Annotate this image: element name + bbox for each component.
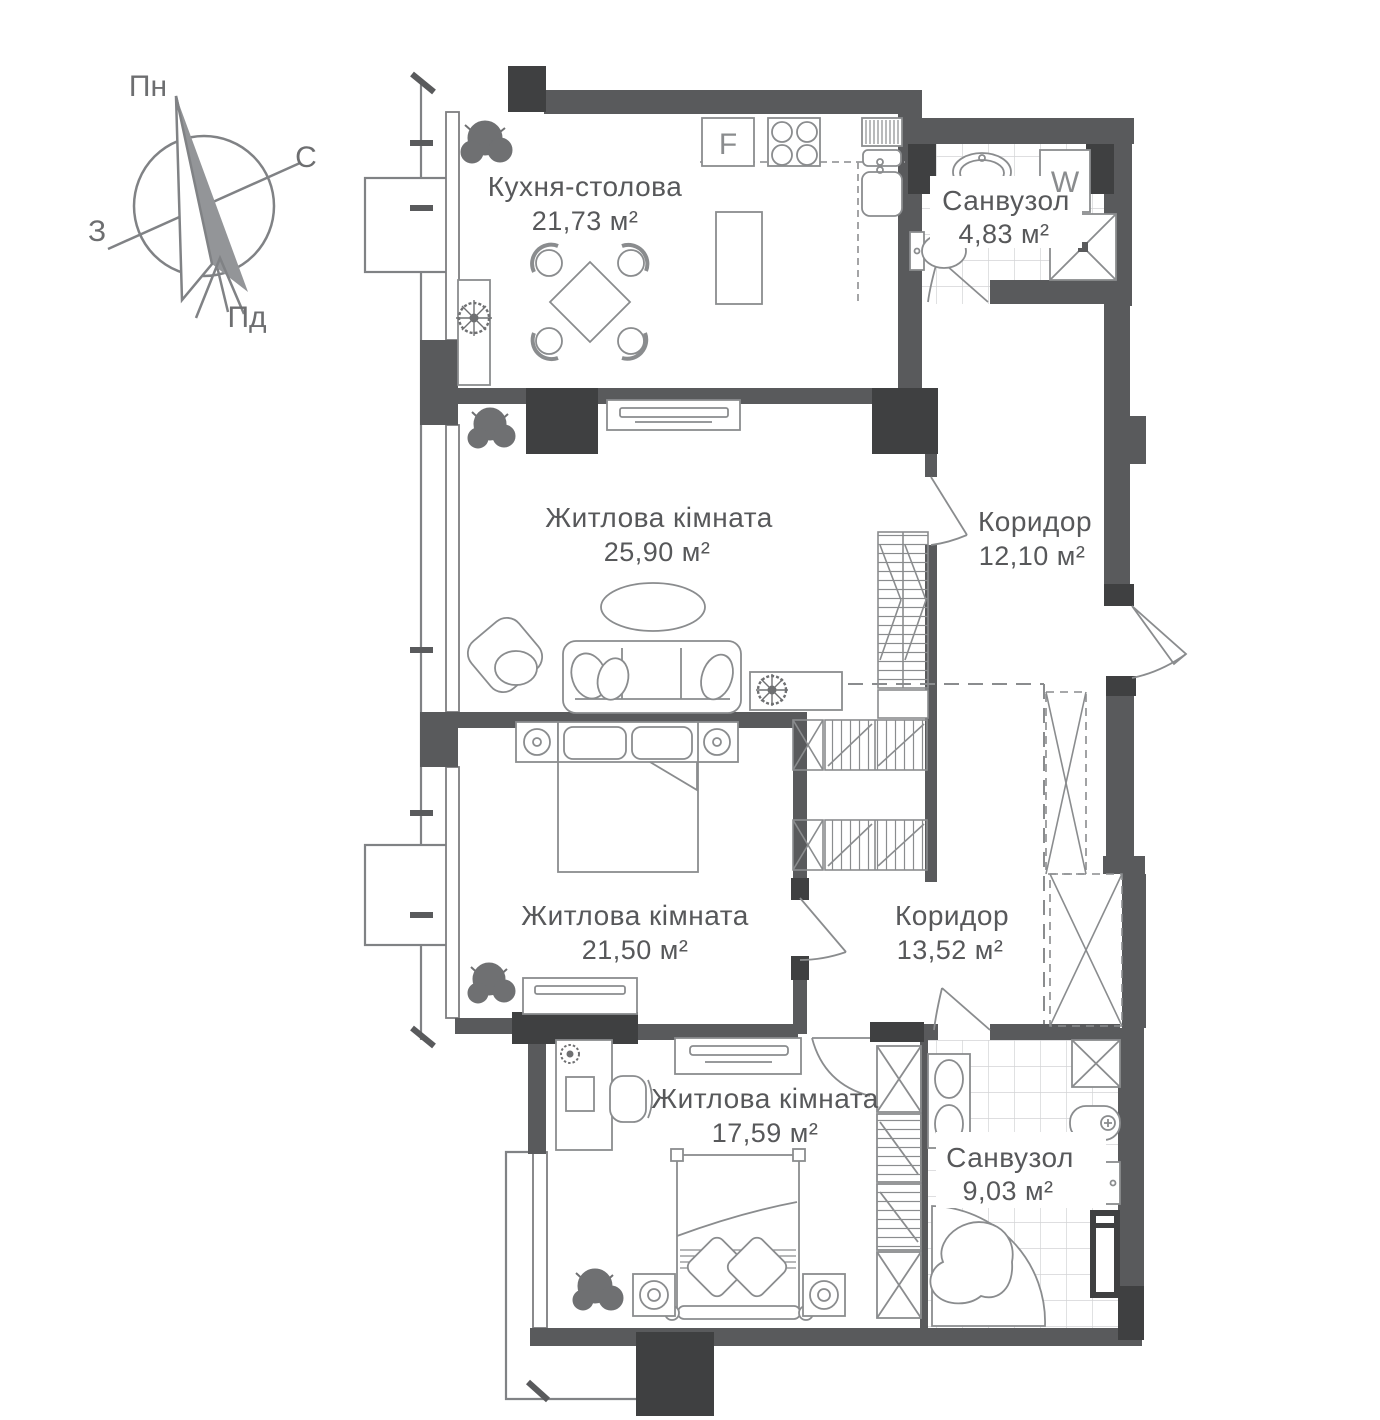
corridor-1-area: 12,10 м²	[979, 541, 1086, 571]
corridor-2-area: 13,52 м²	[897, 935, 1004, 965]
dish-drainer	[862, 118, 902, 146]
bathroom-2-area: 9,03 м²	[962, 1176, 1053, 1206]
stove	[768, 118, 820, 166]
bedroom-2-name: Житлова кімната	[651, 1083, 879, 1114]
living-room-area: 25,90 м²	[604, 537, 711, 567]
floor-plan-canvas: Пн С З Пд	[0, 0, 1380, 1420]
kitchen-sink	[862, 150, 902, 216]
wardrobe-row-top	[793, 720, 927, 770]
compass-east-label: С	[295, 141, 317, 174]
entry-door-leaf	[1132, 606, 1186, 664]
coffee-table	[601, 583, 705, 631]
bedroom-1-name: Житлова кімната	[521, 900, 749, 931]
tv-console	[607, 400, 740, 430]
compass-west-label: З	[88, 215, 106, 248]
dresser	[523, 978, 637, 1014]
compass-south-label: Пд	[227, 301, 266, 334]
bed-2	[665, 1149, 813, 1320]
bedroom-1-furniture	[516, 722, 738, 1014]
bedroom-1-area: 21,50 м²	[582, 935, 689, 965]
wardrobe-row-bottom	[793, 820, 927, 870]
corridor-2-name: Коридор	[895, 900, 1009, 931]
bathroom-1-area: 4,83 м²	[958, 219, 1049, 249]
shower-2	[1072, 1040, 1120, 1087]
kitchen-area: 21,73 м²	[532, 206, 639, 236]
floor-plan-svg: Пн С З Пд	[0, 0, 1380, 1420]
kitchen-island	[716, 212, 762, 304]
nightstand-right	[696, 722, 738, 762]
bedroom-2-area: 17,59 м²	[712, 1118, 819, 1148]
hall-wardrobe	[878, 532, 928, 718]
plant-living-left	[468, 408, 515, 448]
living-room-name: Житлова кімната	[545, 502, 773, 533]
dresser-tv	[675, 1038, 801, 1074]
bathroom-2-name: Санвузол	[946, 1142, 1074, 1173]
towel-radiator	[1090, 1210, 1120, 1298]
nightstand-left	[516, 722, 558, 762]
compass-north-label: Пн	[129, 70, 167, 103]
double-bed	[558, 722, 698, 872]
speaker-left	[633, 1274, 675, 1316]
plant-bedroom-1	[468, 963, 515, 1003]
bedroom-2-wardrobe	[877, 1046, 921, 1318]
plant-kitchen-corner	[461, 121, 512, 163]
washing-machine-label: W	[1051, 166, 1080, 199]
armchair	[461, 611, 548, 698]
kitchen-furniture	[458, 118, 905, 385]
compass-rose	[108, 96, 300, 318]
sofa	[563, 641, 741, 713]
corridor-1-name: Коридор	[978, 506, 1092, 537]
speaker-right	[803, 1274, 845, 1316]
fridge-label: F	[719, 128, 737, 161]
plant-bedroom-2	[573, 1269, 623, 1310]
dining-table-set	[532, 245, 647, 359]
kitchen-name: Кухня-столова	[488, 171, 683, 202]
